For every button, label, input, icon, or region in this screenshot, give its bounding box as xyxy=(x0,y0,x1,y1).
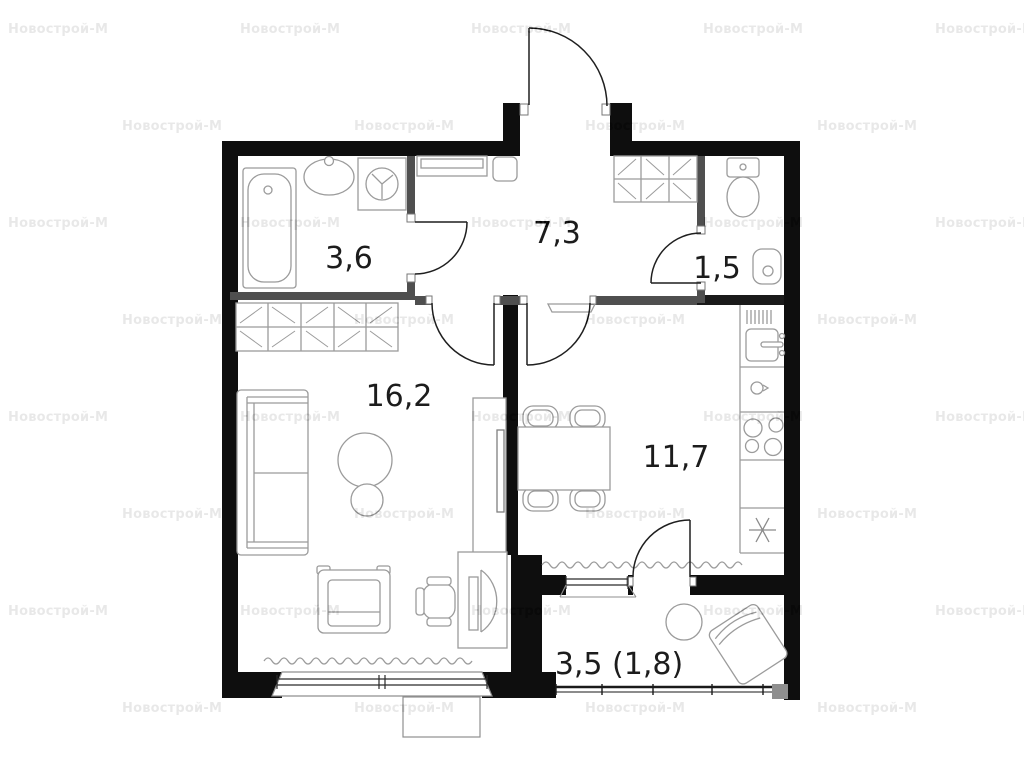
wall-bath-south xyxy=(230,292,415,300)
floorplan-image: 3,6 7,3 1,5 16,2 11,7 3,5 (1,8) Новостро… xyxy=(0,0,1024,768)
bathtub xyxy=(243,168,296,288)
toilet xyxy=(727,158,759,217)
faucet xyxy=(761,342,783,347)
balcony-glazing xyxy=(556,684,788,699)
wall-entry-right xyxy=(610,103,632,156)
room-label-wc: 1,5 xyxy=(693,251,741,286)
opening-balcony-door xyxy=(633,575,690,595)
kettle xyxy=(751,382,768,394)
hall-bench xyxy=(417,156,487,176)
dish-rack xyxy=(747,310,771,324)
wc-sink xyxy=(753,249,781,284)
wall-wc-south xyxy=(697,295,784,305)
wall-balcony-sill-block xyxy=(541,672,556,698)
room-label-balcony: 3,5 (1,8) xyxy=(555,647,683,682)
living-wardrobe xyxy=(236,303,398,351)
room-label-kitchen: 11,7 xyxy=(643,440,710,475)
desk xyxy=(458,552,507,648)
wall-kitchen-bottom-c xyxy=(690,575,784,595)
balcony-table xyxy=(666,604,702,640)
dining-table xyxy=(518,427,610,490)
living-window xyxy=(272,672,492,696)
pouf xyxy=(338,433,392,516)
wall-top-right xyxy=(610,141,800,156)
sofa xyxy=(237,390,308,555)
bathroom-door xyxy=(415,222,467,274)
room-label-living-room: 16,2 xyxy=(366,379,433,414)
lounge-chair xyxy=(707,602,789,686)
wall-top-left xyxy=(222,141,520,156)
radiator-kitchen xyxy=(542,562,742,568)
wall-entry-left xyxy=(503,103,520,156)
walls-outer xyxy=(222,103,800,700)
wall-right xyxy=(784,141,800,700)
jamb-entry-right xyxy=(602,104,610,115)
fridge-snowflake xyxy=(749,518,776,542)
opening-living-door xyxy=(432,295,494,306)
room-label-hallway: 7,3 xyxy=(533,216,581,251)
washing-machine xyxy=(358,158,406,210)
floorplan-svg: 3,6 7,3 1,5 16,2 11,7 3,5 (1,8) xyxy=(0,0,1024,768)
hall-wardrobe xyxy=(614,156,697,202)
radiator-living xyxy=(264,658,472,664)
kitchen-counter xyxy=(740,305,785,553)
exterior-slab xyxy=(403,697,480,737)
room-label-bathroom: 3,6 xyxy=(325,241,373,276)
hall-stool xyxy=(493,157,517,181)
jamb-living-left xyxy=(426,296,432,304)
jamb-balcony-right xyxy=(690,577,696,586)
office-chair xyxy=(416,577,455,626)
wall-bath-east-a xyxy=(407,156,415,222)
jamb-kitchen-right xyxy=(590,296,596,304)
jamb-entry-left xyxy=(520,104,528,115)
entry-door xyxy=(529,28,607,106)
jamb-bath-bottom xyxy=(407,274,415,282)
bathroom-sink xyxy=(304,157,354,196)
jamb-kitchen-left xyxy=(520,296,527,304)
jamb-living-right xyxy=(494,296,500,304)
wall-left xyxy=(222,141,238,698)
wall-kitchen-bottom-a xyxy=(518,575,566,595)
glazing-end-block xyxy=(772,684,788,699)
tv xyxy=(497,430,504,512)
living-room-door xyxy=(432,303,494,365)
wall-wc-west-a xyxy=(697,156,705,233)
jamb-bath-top xyxy=(407,214,415,222)
stove-burners xyxy=(744,418,783,456)
armchair xyxy=(317,566,390,633)
